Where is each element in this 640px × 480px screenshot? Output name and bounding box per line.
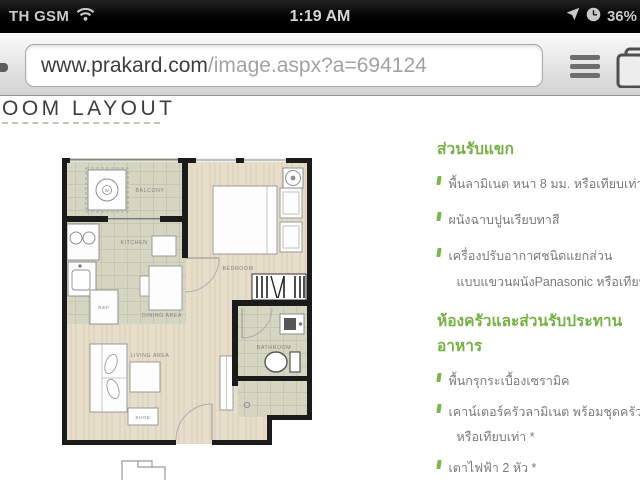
bullet-tick-icon — [436, 248, 441, 257]
plan-label-shoe: SHOE — [135, 415, 150, 420]
tabs-icon[interactable] — [614, 46, 640, 93]
partial-plan-drawing — [118, 456, 168, 480]
plan-label-living: LIVING AREA — [131, 353, 170, 359]
plan-label-bedroom: BEDROOM — [222, 266, 253, 272]
plan-label-kitchen: KITCHEN — [121, 240, 148, 246]
address-bar[interactable]: www.prakard.com/image.aspx?a=694124 — [25, 44, 543, 87]
list-item: พื้นกรุกระเบื้องเซรามิค — [437, 371, 640, 391]
battery-percent: 36% — [607, 8, 637, 25]
plan-label-ref: REF — [98, 305, 109, 311]
heading-underline — [2, 122, 160, 124]
list-item: เคาน์เตอร์ครัวลามิเนต พร้อมชุดครัว Built… — [437, 402, 640, 422]
section-kitchen-specs: ห้องครัวและส่วนรับประทานอาหาร พื้นกรุกระ… — [437, 308, 640, 480]
plan-label-washer: W — [105, 188, 110, 193]
plan-label-dining: DINING AREA — [142, 313, 182, 319]
list-item: พื้นลามิเนต หนา 8 มม. หรือเทียบเท่า — [437, 174, 640, 194]
list-item-continuation: แบบแขวนผนังPanasonic หรือเทียบเท่า * — [449, 272, 640, 292]
list-item-text: พื้นกรุกระเบื้องเซรามิค — [449, 371, 570, 391]
plan-label-balcony: BALCONY — [136, 188, 165, 194]
list-item-text: หรือเทียบเท่า * — [457, 427, 535, 447]
page-title: OOM LAYOUT — [2, 97, 175, 121]
list-item: เครื่องปรับอากาศชนิดแยกส่วน — [437, 246, 640, 266]
menu-icon[interactable] — [570, 55, 600, 82]
section-title: ห้องครัวและส่วนรับประทานอาหาร — [437, 308, 640, 358]
list-item-text: เครื่องปรับอากาศชนิดแยกส่วน — [449, 246, 613, 266]
phone-screen: TH GSM 1:19 AM 36% — [0, 0, 640, 480]
floor-plan-image: W REF — [62, 158, 312, 453]
list-item-text: พื้นลามิเนต หนา 8 มม. หรือเทียบเท่า — [449, 174, 640, 194]
status-bar: TH GSM 1:19 AM 36% — [0, 0, 640, 33]
clock-time: 1:19 AM — [0, 0, 640, 33]
bullet-tick-icon — [436, 212, 441, 221]
location-arrow-icon — [566, 7, 580, 26]
clock-icon — [586, 7, 601, 27]
browser-toolbar: www.prakard.com/image.aspx?a=694124 — [0, 33, 640, 96]
url-path: /image.aspx?a=694124 — [208, 54, 427, 78]
back-icon[interactable] — [0, 63, 8, 72]
list-item-text: เตาไฟฟ้า 2 หัว * — [449, 458, 537, 478]
list-item: เตาไฟฟ้า 2 หัว * — [437, 458, 640, 478]
spec-panel: ส่วนรับแขก พื้นลามิเนต หนา 8 มม. หรือเที… — [437, 136, 640, 480]
bullet-tick-icon — [436, 404, 441, 413]
list-item: ผนังฉาบปูนเรียบทาสี — [437, 210, 640, 230]
list-item-text: เคาน์เตอร์ครัวลามิเนต พร้อมชุดครัว Built… — [449, 402, 640, 422]
bullet-tick-icon — [436, 460, 441, 469]
bullet-tick-icon — [436, 176, 441, 185]
list-item-text: ผนังฉาบปูนเรียบทาสี — [449, 210, 560, 230]
plan-label-bathroom: BATHROOM — [257, 345, 291, 351]
list-item-continuation: หรือเทียบเท่า * — [449, 427, 640, 447]
section-title: ส่วนรับแขก — [437, 136, 640, 161]
section-living-specs: ส่วนรับแขก พื้นลามิเนต หนา 8 มม. หรือเที… — [437, 136, 640, 292]
list-item-text: แบบแขวนผนังPanasonic หรือเทียบเท่า * — [457, 272, 640, 292]
url-domain: www.prakard.com — [41, 54, 208, 78]
bullet-tick-icon — [436, 373, 441, 382]
